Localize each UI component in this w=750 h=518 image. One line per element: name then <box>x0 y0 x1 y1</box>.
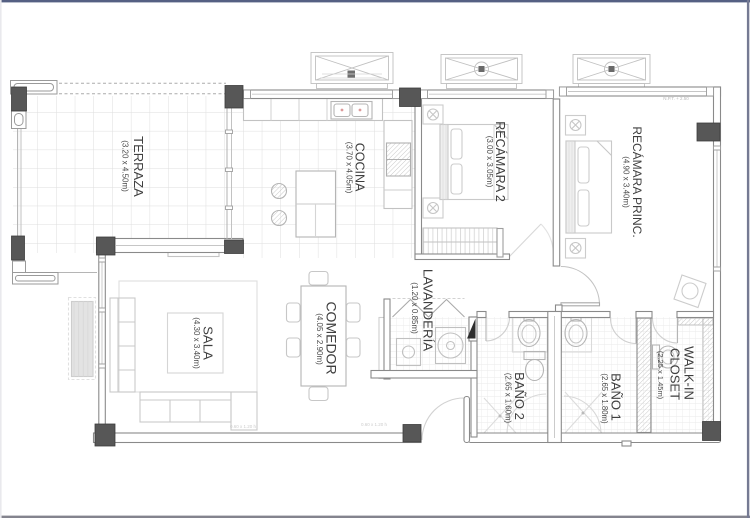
svg-text:(2.65 x 1.60m): (2.65 x 1.60m) <box>504 373 513 424</box>
svg-text:SALA: SALA <box>201 326 216 360</box>
svg-text:RECÁMARA PRINC.: RECÁMARA PRINC. <box>630 126 645 237</box>
svg-text:(2.65 x 1.80m): (2.65 x 1.80m) <box>600 373 609 424</box>
svg-text:(4.90 x 3.40m): (4.90 x 3.40m) <box>622 156 631 208</box>
svg-text:TERRAZA: TERRAZA <box>131 136 146 197</box>
svg-text:0.60 x 1.20 h: 0.60 x 1.20 h <box>230 424 257 429</box>
svg-text:(4.05 x 2.90m): (4.05 x 2.90m) <box>315 313 324 365</box>
svg-text:(3.70 x 4.05m): (3.70 x 4.05m) <box>345 142 354 194</box>
svg-text:BAÑO 2: BAÑO 2 <box>512 372 527 420</box>
svg-text:0.60 x 1.20 h: 0.60 x 1.20 h <box>361 422 388 427</box>
svg-text:(3.00 x 3.05m): (3.00 x 3.05m) <box>485 136 494 188</box>
svg-text:COMEDOR: COMEDOR <box>324 301 340 374</box>
svg-text:LAVANDERÍA: LAVANDERÍA <box>421 269 436 351</box>
svg-text:CLOSET: CLOSET <box>668 348 683 400</box>
svg-text:(1.20 x 0.85m): (1.20 x 0.85m) <box>410 282 419 334</box>
svg-text:(2.25 x 1.45m): (2.25 x 1.45m) <box>656 351 665 400</box>
svg-text:(3.20 x 4.50m): (3.20 x 4.50m) <box>121 140 130 192</box>
svg-text:RECÁMARA 2: RECÁMARA 2 <box>493 121 508 202</box>
svg-text:BAÑO 1: BAÑO 1 <box>609 373 624 421</box>
svg-text:WALK-IN: WALK-IN <box>682 346 697 400</box>
svg-text:(4.30 x 3.40m): (4.30 x 3.40m) <box>192 317 201 369</box>
svg-text:COCINA: COCINA <box>353 143 367 192</box>
svg-text:N.P.T. + 2.50: N.P.T. + 2.50 <box>663 96 689 101</box>
